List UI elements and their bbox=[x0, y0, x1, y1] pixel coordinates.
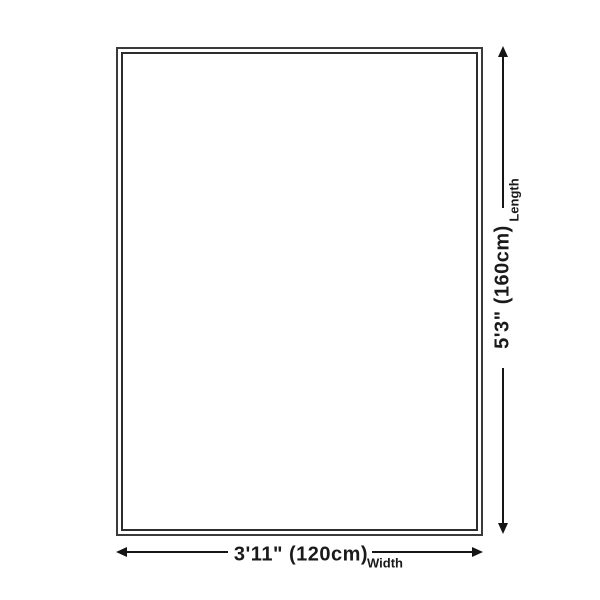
rug-outline bbox=[116, 47, 483, 536]
length-label: Length bbox=[507, 178, 522, 221]
length-dimension-line-top bbox=[502, 56, 504, 208]
rug-dimension-diagram: Length 5'3" (160cm) 3'11" (120cm) Width bbox=[0, 0, 600, 600]
width-label: Width bbox=[367, 556, 403, 571]
length-dimension-line-bottom bbox=[502, 368, 504, 525]
length-value: 5'3" (160cm) bbox=[492, 225, 515, 349]
arrow-down-icon bbox=[498, 523, 508, 534]
rug-inner-outline bbox=[121, 52, 478, 531]
width-dimension-line-left bbox=[126, 551, 228, 553]
arrow-right-icon bbox=[472, 547, 483, 557]
width-dimension-line-right bbox=[372, 551, 472, 553]
width-value: 3'11" (120cm) bbox=[234, 544, 368, 567]
